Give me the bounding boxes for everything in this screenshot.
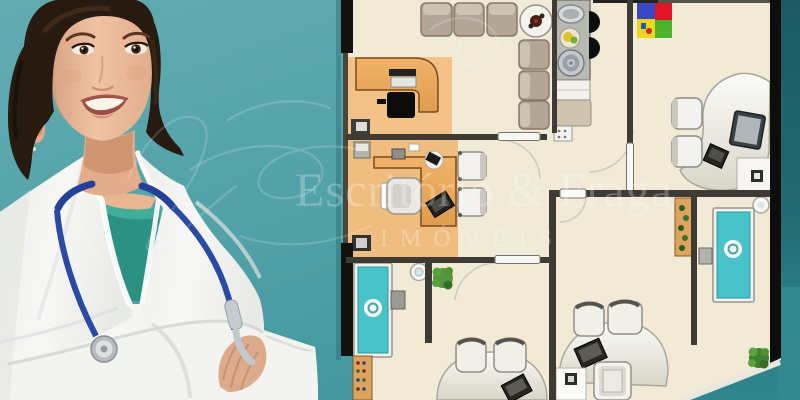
svg-text:IMÓVEIS: IMÓVEIS [380, 225, 564, 252]
svg-text:Escritório & Fraga: Escritório & Fraga [295, 164, 673, 217]
